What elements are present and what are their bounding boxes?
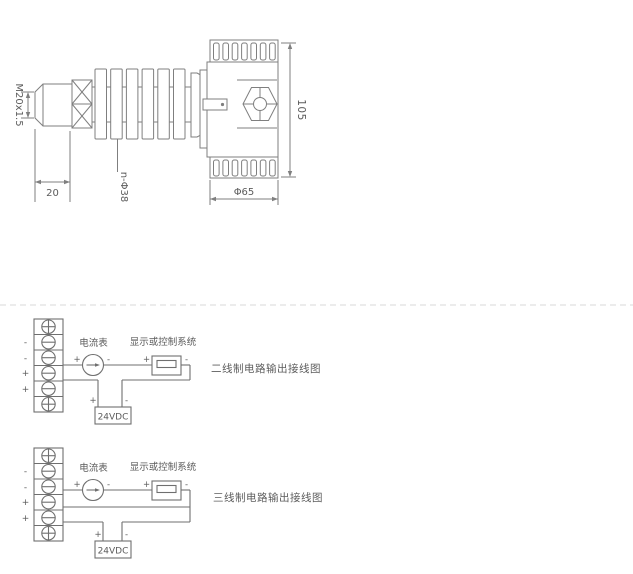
dim-housing-diameter: Φ65 xyxy=(210,180,278,205)
polarity-mark: - xyxy=(185,480,188,490)
terminal-polarity-label: - xyxy=(24,483,27,493)
terminal-polarity-label: - xyxy=(24,354,27,364)
terminal-screw xyxy=(42,382,55,395)
display-system-box xyxy=(152,481,181,500)
polarity-mark: + xyxy=(73,355,80,365)
thread-nipple xyxy=(35,84,72,126)
housing-diameter-label: Φ65 xyxy=(234,187,255,198)
thread-length-label: 20 xyxy=(46,188,59,199)
dim-housing-height: 105 xyxy=(281,43,307,177)
power-supply-label: 24VDC xyxy=(98,413,129,423)
datasheet-page: M20x1.5 20 n-Φ38 105 xyxy=(0,0,633,574)
polarity-mark: - xyxy=(107,355,110,365)
two-wire-diagram: - - + + 电流表 + - 显示或控制系 xyxy=(22,319,321,424)
terminal-block: - - + + xyxy=(22,319,63,412)
polarity-mark: + xyxy=(143,480,150,490)
terminal-polarity-label: + xyxy=(22,498,30,508)
polarity-mark: + xyxy=(73,480,80,490)
fin-diameter-label: n-Φ38 xyxy=(118,172,129,203)
terminal-screw xyxy=(42,511,55,524)
electrical-tab xyxy=(203,99,227,110)
terminal-screw xyxy=(42,465,55,478)
tab-pin-dot xyxy=(221,103,224,106)
terminal-screw xyxy=(42,527,55,540)
three-wire-diagram: - - + + 电流表 + - xyxy=(22,448,323,558)
terminal-screw xyxy=(42,351,55,364)
transmitter-mechanical-drawing: M20x1.5 20 n-Φ38 105 xyxy=(13,40,307,205)
terminal-polarity-label: + xyxy=(22,514,30,524)
terminal-polarity-label: - xyxy=(24,338,27,348)
terminal-screw xyxy=(42,398,55,411)
polarity-mark: - xyxy=(107,480,110,490)
terminal-screw xyxy=(42,480,55,493)
dim-thread-length: 20 xyxy=(35,129,70,202)
ammeter-label: 电流表 xyxy=(79,462,108,474)
power-supply-box: 24VDC xyxy=(95,541,131,558)
dim-thread: M20x1.5 xyxy=(13,83,34,126)
display-system-box xyxy=(152,356,181,375)
housing-ribs-bottom xyxy=(210,157,278,178)
power-supply-box: 24VDC xyxy=(95,407,131,424)
terminal-polarity-label: + xyxy=(22,385,30,395)
polarity-mark: + xyxy=(89,396,96,406)
ammeter-symbol xyxy=(83,480,104,501)
polarity-mark: - xyxy=(185,355,188,365)
terminal-screw xyxy=(42,496,55,509)
display-system-label: 显示或控制系统 xyxy=(130,461,197,473)
dim-fin-diameter: n-Φ38 xyxy=(118,139,130,202)
display-system-label: 显示或控制系统 xyxy=(130,336,197,348)
diagram-title: 三线制电路输出接线图 xyxy=(213,491,323,504)
ammeter-symbol xyxy=(83,355,104,376)
terminal-screw xyxy=(42,336,55,349)
housing-ribs-top xyxy=(210,40,278,62)
terminal-screw xyxy=(42,449,55,462)
polarity-mark: - xyxy=(125,530,128,540)
terminal-block: - - + + xyxy=(22,448,63,541)
cooling-fins xyxy=(95,69,185,139)
terminal-polarity-label: + xyxy=(22,369,30,379)
ammeter-label: 电流表 xyxy=(79,337,108,349)
polarity-mark: - xyxy=(125,396,128,406)
housing-height-label: 105 xyxy=(295,99,307,121)
polarity-mark: + xyxy=(94,530,101,540)
technical-diagram-canvas: M20x1.5 20 n-Φ38 105 xyxy=(0,0,633,574)
polarity-mark: + xyxy=(143,355,150,365)
terminal-polarity-label: - xyxy=(24,467,27,477)
hex-section xyxy=(72,80,92,128)
terminal-screw xyxy=(42,367,55,380)
power-supply-label: 24VDC xyxy=(98,547,129,557)
thread-label: M20x1.5 xyxy=(13,83,24,126)
diagram-title: 二线制电路输出接线图 xyxy=(211,362,321,375)
terminal-screw xyxy=(42,320,55,333)
